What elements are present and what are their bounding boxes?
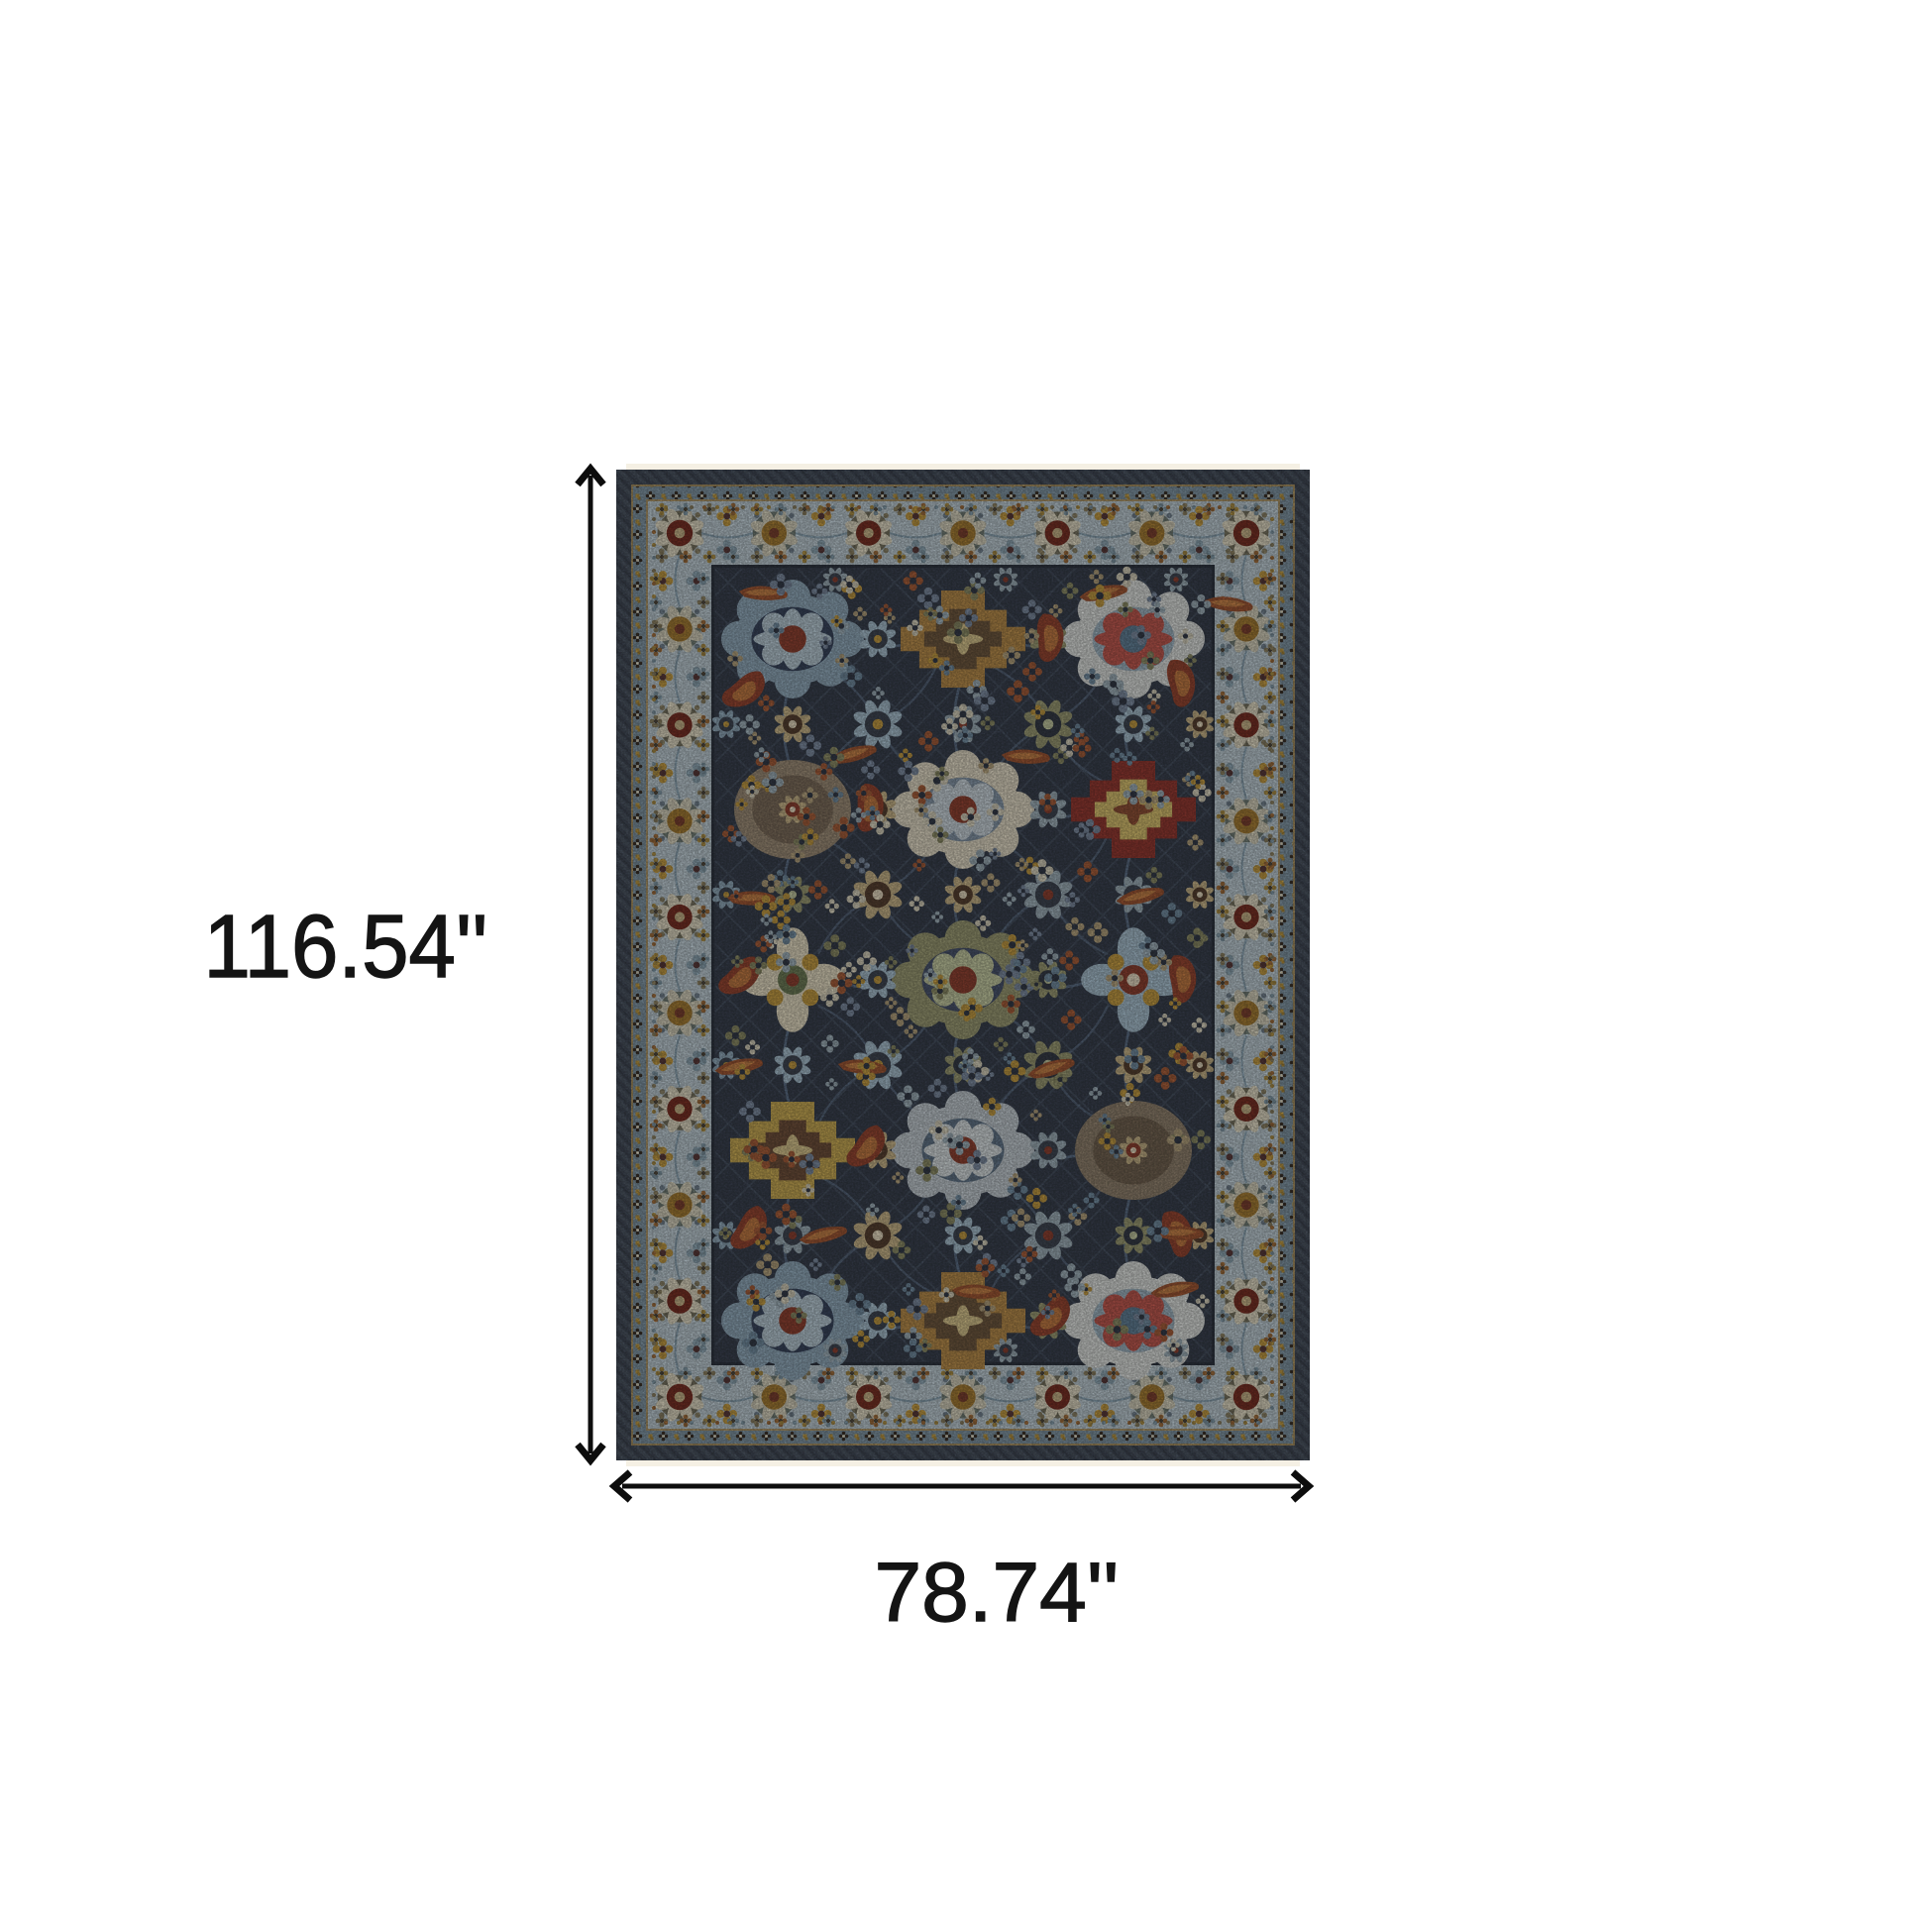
- svg-text:78.74'': 78.74'': [875, 1546, 1120, 1639]
- svg-text:116.54'': 116.54'': [204, 898, 488, 997]
